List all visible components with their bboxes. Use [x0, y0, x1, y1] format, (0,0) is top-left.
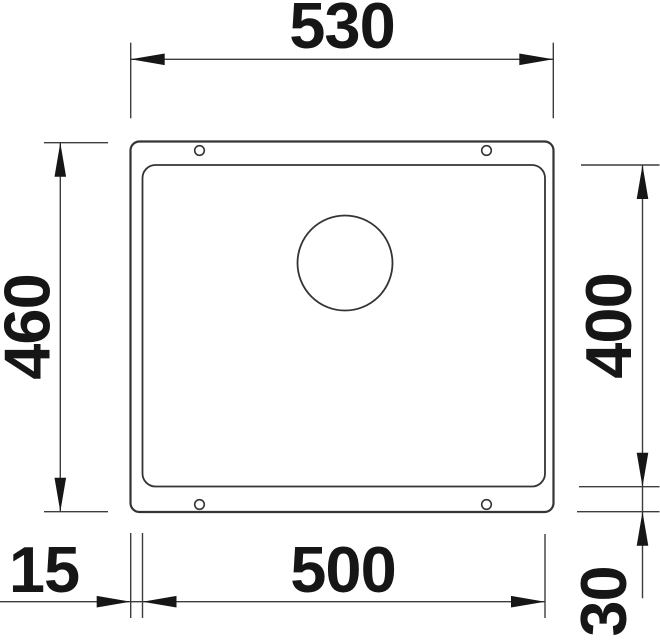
- dimension-lines: [0, 43, 660, 618]
- drain-circle: [298, 216, 393, 311]
- mounting-hole-top-right: [482, 146, 492, 156]
- arrow-500-right-icon: [511, 596, 545, 608]
- dim-label-bowl-height: 400: [572, 273, 645, 378]
- dim-label-overall-height: 460: [0, 274, 64, 379]
- dim-label-bowl-width: 500: [290, 533, 395, 606]
- dimension-arrows: [55, 54, 649, 608]
- sink-outer-rim-outline: [131, 142, 554, 513]
- arrow-400-top-icon: [637, 165, 649, 199]
- dim-label-overall-width: 530: [289, 0, 394, 62]
- arrow-530-left-icon: [131, 54, 165, 66]
- mounting-hole-bottom-right: [482, 500, 492, 510]
- arrow-460-bottom-icon: [55, 478, 67, 512]
- technical-drawing-page: 530 460 400 500 15 30: [0, 0, 660, 640]
- dim-label-rim-bottom: 30: [567, 566, 640, 636]
- arrow-460-top-icon: [55, 143, 67, 177]
- mounting-hole-top-left: [195, 146, 205, 156]
- dim-label-rim-left: 15: [9, 533, 79, 606]
- sink-bowl-outline: [143, 165, 546, 487]
- sink-view: [131, 142, 554, 513]
- arrow-530-right-icon: [519, 54, 553, 66]
- mounting-hole-bottom-left: [195, 500, 205, 510]
- arrow-500-left-icon: [143, 596, 177, 608]
- arrow-15-right-icon: [97, 596, 131, 608]
- arrow-400-bottom-icon: [637, 453, 649, 487]
- arrow-30-up-icon: [637, 512, 649, 546]
- technical-drawing-canvas: 530 460 400 500 15 30: [0, 0, 660, 640]
- dimension-labels: 530 460 400 500 15 30: [0, 0, 645, 637]
